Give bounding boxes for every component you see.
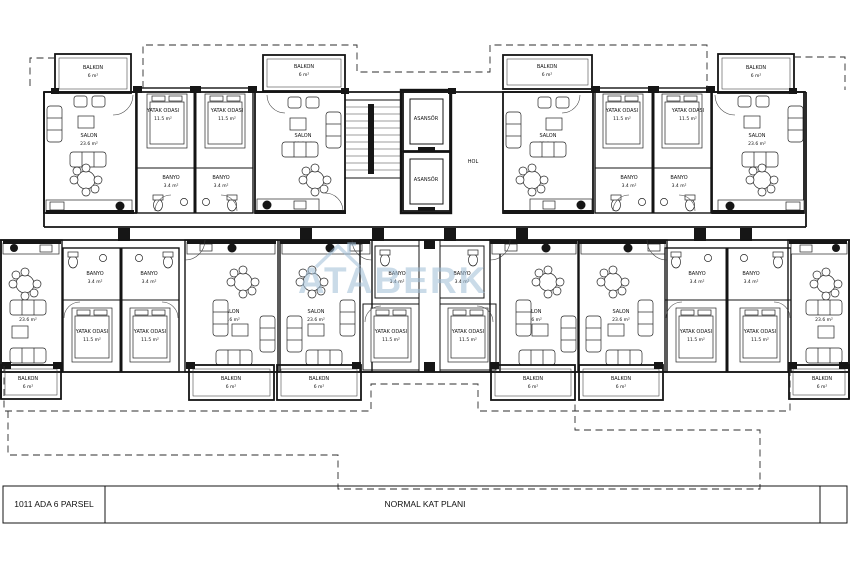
sofa <box>806 348 842 363</box>
room-area-label: 3.4 m² <box>142 279 157 285</box>
sink <box>99 254 106 261</box>
stove <box>726 202 735 211</box>
floor-outline <box>8 404 760 489</box>
kitchen-sink <box>505 244 517 251</box>
eave-line <box>794 57 845 90</box>
sink <box>638 198 645 205</box>
apartment-top-left: BALKON 6 m² SALON 23.6 m² <box>44 54 136 213</box>
plan-title: NORMAL KAT PLANI <box>384 499 465 509</box>
balcony-rail <box>507 59 588 85</box>
room-name-label: BANYO <box>688 271 705 277</box>
bedroom-unit-bottom-right: BANYO 3.4 m² BANYO 3.4 m² YATAK ODASI 11… <box>665 248 791 372</box>
core: ASANSÖR ASANSÖR HOL <box>345 90 478 213</box>
room-area-label: 23.6 m² <box>80 141 98 147</box>
kitchen-sink <box>294 201 306 209</box>
sofa <box>47 106 62 142</box>
dining-table <box>227 266 259 298</box>
sofa <box>586 316 601 352</box>
coffee-table <box>532 324 548 336</box>
room-area-label: 6 m² <box>542 72 553 78</box>
sofa <box>10 300 46 315</box>
title-block: 1011 ADA 6 PARSEL NORMAL KAT PLANI <box>3 486 847 523</box>
bed <box>676 308 716 362</box>
sofa <box>260 316 275 352</box>
apartment-bottom-middle-left-1: SALON 23.6 m² BALKON 6 m² <box>185 240 278 400</box>
room-area-label: 11.5 m² <box>154 116 172 122</box>
apartment-bottom-middle-right-2: SALON 23.6 m² BALKON 6 m² <box>579 240 667 400</box>
sofa <box>606 350 642 365</box>
room-area-label: 11.5 m² <box>218 116 236 122</box>
sofa <box>506 112 521 148</box>
sofa <box>216 350 252 365</box>
apartment-bottom-right: SALON 23.6 m² BALKON 6 m² <box>788 240 849 399</box>
armchair <box>288 97 301 108</box>
room-name-label: SALON <box>308 309 325 315</box>
room-area-label: 23.6 m² <box>307 317 325 323</box>
apartment-top-middle-right: BALKON 6 m² SALON 23.6 m² <box>503 55 593 213</box>
floor-plan-sheet: BALKON 6 m² SALON 23.6 m² YATAK ODASI 11… <box>0 0 850 566</box>
room-name-label: YATAK ODASI <box>374 329 407 335</box>
room-name-label: YATAK ODASI <box>75 329 108 335</box>
sink <box>740 254 747 261</box>
dining-table <box>746 164 778 196</box>
sofa <box>561 316 576 352</box>
room-name-label: BALKON <box>523 376 544 382</box>
kitchen-sink <box>200 244 212 251</box>
sofa <box>282 142 318 157</box>
sofa <box>10 348 46 363</box>
bedroom-unit-bottom-left: BANYO 3.4 m² BANYO 3.4 m² YATAK ODASI 11… <box>63 248 179 372</box>
coffee-table <box>308 324 324 336</box>
kitchen-sink <box>800 245 812 252</box>
room-name-label: BALKON <box>294 64 315 70</box>
room-area-label: 11.5 m² <box>459 337 477 343</box>
bed <box>130 308 170 362</box>
dining-table <box>516 164 548 196</box>
coffee-table <box>608 324 624 336</box>
eave-line <box>30 58 55 90</box>
bed <box>371 308 411 362</box>
sofa <box>638 300 653 336</box>
watermark-text: ATABERK <box>298 260 487 301</box>
parcel-label: 1011 ADA 6 PARSEL <box>14 499 94 509</box>
sofa <box>306 350 342 365</box>
room-name-label: YATAK ODASI <box>133 329 166 335</box>
stove <box>263 201 272 210</box>
coffee-table <box>290 118 306 130</box>
balcony <box>1 365 61 399</box>
room-name-label: SALON <box>81 133 98 139</box>
balcony <box>491 365 575 400</box>
balcony-rail <box>193 369 270 396</box>
stove <box>624 244 633 253</box>
toilet <box>163 252 173 268</box>
sink <box>704 254 711 261</box>
toilet <box>227 195 237 211</box>
stove <box>577 201 586 210</box>
kitchen-sink <box>786 202 800 210</box>
sofa <box>213 300 228 336</box>
room-name-label: BANYO <box>162 175 179 181</box>
room-name-label: YATAK ODASI <box>605 108 638 114</box>
room-area-label: 3.4 m² <box>672 183 687 189</box>
armchair <box>92 96 105 107</box>
room-name-label: BALKON <box>309 376 330 382</box>
balcony-rail <box>495 369 571 396</box>
elevator-label: ASANSÖR <box>414 115 439 122</box>
column <box>118 228 752 241</box>
room-area-label: 3.4 m² <box>622 183 637 189</box>
floor-plan-drawing: BALKON 6 m² SALON 23.6 m² YATAK ODASI 11… <box>0 0 850 566</box>
dining-table <box>532 266 564 298</box>
toilet <box>153 195 163 211</box>
sink <box>202 198 209 205</box>
dining-table <box>9 268 41 300</box>
armchair <box>538 97 551 108</box>
room-name-label: BANYO <box>742 271 759 277</box>
balcony <box>503 55 592 89</box>
room-area-label: 23.6 m² <box>19 317 37 323</box>
room-area-label: 23.6 m² <box>748 141 766 147</box>
room-area-label: 23.6 m² <box>815 317 833 323</box>
room-name-label: BANYO <box>140 271 157 277</box>
balcony-rail <box>281 369 357 396</box>
room-name-label: YATAK ODASI <box>679 329 712 335</box>
bedroom-unit-top-right: YATAK ODASI 11.5 m² YATAK ODASI 11.5 m² … <box>595 88 711 213</box>
sink <box>660 198 667 205</box>
coffee-table <box>744 116 760 128</box>
room-name-label: SALON <box>749 133 766 139</box>
room-area-label: 11.5 m² <box>382 337 400 343</box>
stove <box>542 244 551 253</box>
armchair <box>738 96 751 107</box>
room-area-label: 6 m² <box>751 73 762 79</box>
room-name-label: BANYO <box>670 175 687 181</box>
toilet <box>685 195 695 211</box>
balcony-rail <box>583 369 659 396</box>
kitchen-sink <box>40 245 52 252</box>
sofa <box>326 112 341 148</box>
bed <box>740 308 780 362</box>
room-name-label: BANYO <box>212 175 229 181</box>
sink <box>135 254 142 261</box>
dining-table <box>597 266 629 298</box>
room-name-label: BALKON <box>18 376 39 382</box>
kitchen-sink <box>50 202 64 210</box>
stove <box>228 244 237 253</box>
room-area-label: 3.4 m² <box>88 279 103 285</box>
bedroom-unit-top-left: YATAK ODASI 11.5 m² YATAK ODASI 11.5 m² … <box>137 88 253 213</box>
room-area-label: 6 m² <box>528 384 539 390</box>
room-area-label: 11.5 m² <box>687 337 705 343</box>
sofa <box>287 316 302 352</box>
bed <box>448 308 488 362</box>
room-area-label: 11.5 m² <box>751 337 769 343</box>
sofa <box>516 300 531 336</box>
coffee-table <box>818 326 834 338</box>
toilet <box>68 252 78 268</box>
apartment-bottom-middle-right-1: SALON 23.6 m² BALKON 6 m² <box>490 240 578 400</box>
balcony <box>189 365 274 400</box>
eave-line <box>143 45 707 88</box>
toilet <box>671 252 681 268</box>
room-area-label: 3.4 m² <box>690 279 705 285</box>
sofa <box>788 106 803 142</box>
sink <box>180 198 187 205</box>
room-name-label: BANYO <box>620 175 637 181</box>
room-area-label: 6 m² <box>23 384 34 390</box>
room-area-label: 3.4 m² <box>164 183 179 189</box>
room-area-label: 6 m² <box>299 72 310 78</box>
dining-table <box>70 164 102 196</box>
room-area-label: 6 m² <box>88 73 99 79</box>
room-area-label: 6 m² <box>817 384 828 390</box>
toilet <box>611 195 621 211</box>
room-name-label: SALON <box>295 133 312 139</box>
hall-label: HOL <box>468 159 479 165</box>
room-area-label: 3.4 m² <box>214 183 229 189</box>
room-name-label: SALON <box>540 133 557 139</box>
coffee-table <box>232 324 248 336</box>
coffee-table <box>12 326 28 338</box>
kitchen-sink <box>543 201 555 209</box>
room-name-label: BALKON <box>611 376 632 382</box>
toilet <box>773 252 783 268</box>
room-area-label: 6 m² <box>616 384 627 390</box>
room-name-label: BALKON <box>746 65 767 71</box>
room-name-label: SALON <box>613 309 630 315</box>
apartment-bottom-left: SALON 23.6 m² BALKON 6 m² <box>1 240 62 399</box>
armchair <box>306 97 319 108</box>
apartment-top-middle-left: BALKON 6 m² SALON 23.6 m² <box>255 55 345 213</box>
room-name-label: BALKON <box>221 376 242 382</box>
balcony <box>277 365 361 400</box>
sofa <box>519 350 555 365</box>
room-area-label: 11.5 m² <box>83 337 101 343</box>
stair-rail <box>368 104 374 174</box>
room-area-label: 11.5 m² <box>141 337 159 343</box>
coffee-table <box>546 118 562 130</box>
room-area-label: 6 m² <box>314 384 325 390</box>
stove <box>116 202 125 211</box>
room-area-label: 23.6 m² <box>612 317 630 323</box>
room-name-label: BANYO <box>86 271 103 277</box>
room-name-label: BALKON <box>812 376 833 382</box>
coffee-table <box>78 116 94 128</box>
dining-table <box>810 268 842 300</box>
room-name-label: BALKON <box>83 65 104 71</box>
room-name-label: YATAK ODASI <box>671 108 704 114</box>
armchair <box>556 97 569 108</box>
room-name-label: YATAK ODASI <box>146 108 179 114</box>
elevator-label: ASANSÖR <box>414 176 439 183</box>
room-name-label: YATAK ODASI <box>451 329 484 335</box>
balcony <box>579 365 663 400</box>
room-area-label: 11.5 m² <box>613 116 631 122</box>
sofa <box>530 142 566 157</box>
armchair <box>756 96 769 107</box>
room-area-label: 3.4 m² <box>744 279 759 285</box>
balcony <box>789 365 849 399</box>
room-name-label: BALKON <box>537 64 558 70</box>
room-name-label: YATAK ODASI <box>210 108 243 114</box>
bed <box>72 308 112 362</box>
sofa <box>340 300 355 336</box>
room-area-label: 6 m² <box>226 384 237 390</box>
room-area-label: 11.5 m² <box>679 116 697 122</box>
room-name-label: YATAK ODASI <box>743 329 776 335</box>
armchair <box>74 96 87 107</box>
apartment-top-right: BALKON 6 m² SALON 23.6 m² <box>712 54 804 213</box>
dining-table <box>299 164 331 196</box>
sofa <box>806 300 842 315</box>
stove <box>10 244 18 252</box>
stove <box>832 244 840 252</box>
